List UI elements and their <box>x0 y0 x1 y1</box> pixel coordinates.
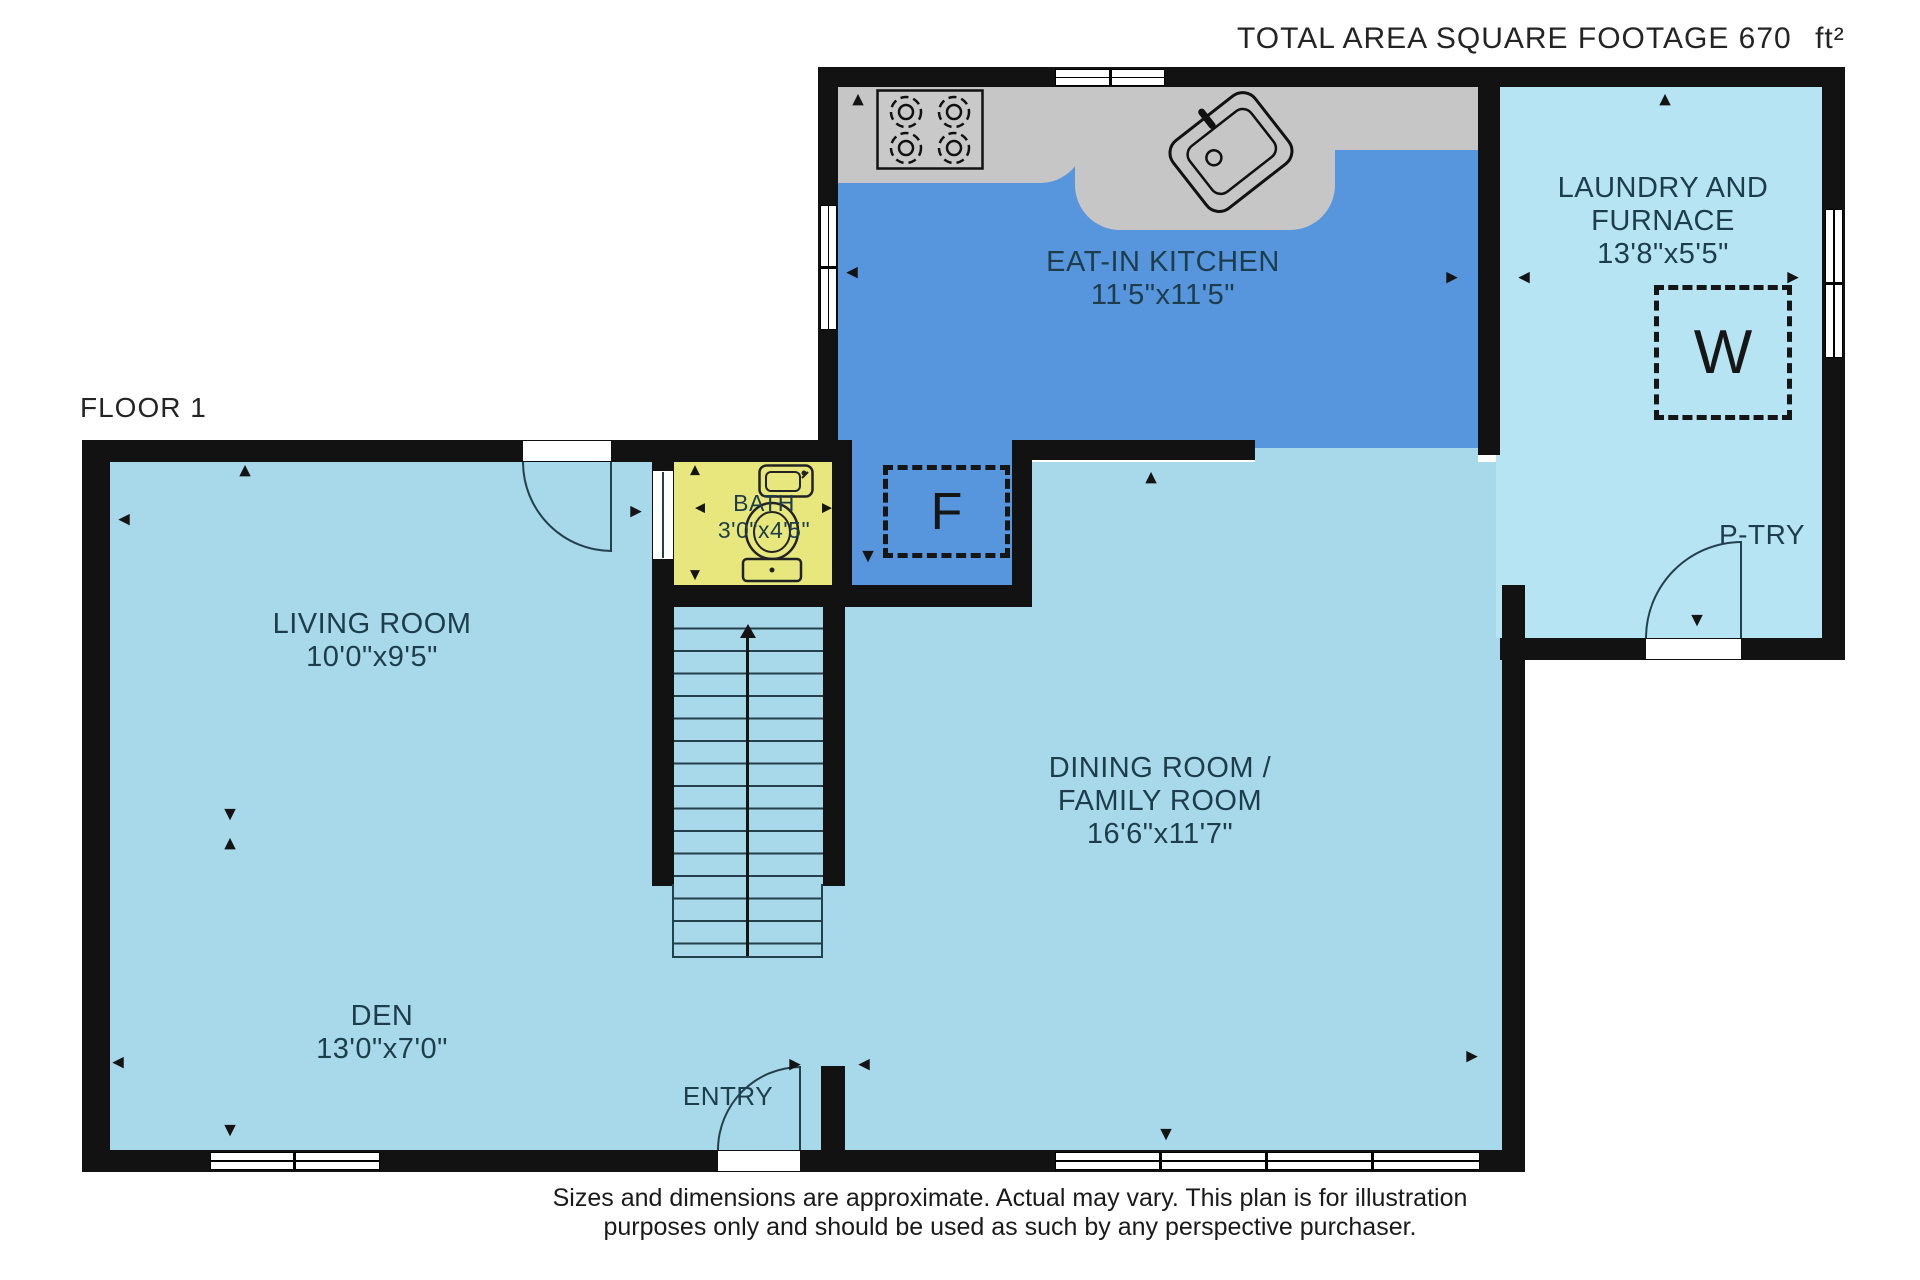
laundry-label: LAUNDRY AND FURNACE 13'8"x5'5" <box>1558 172 1769 271</box>
dining-name-2: FAMILY ROOM <box>1049 785 1271 818</box>
bath-door-leaf <box>662 472 664 558</box>
entry-door-sill <box>717 1150 801 1172</box>
arrow-left-icon: ◀ <box>118 512 130 527</box>
dining-bottom-window <box>1055 1152 1480 1170</box>
laundry-dims: 13'8"x5'5" <box>1558 238 1769 271</box>
dining-name-1: DINING ROOM / <box>1049 752 1271 785</box>
floor-plan: TOTAL AREA SQUARE FOOTAGE 670 ft² FLOOR … <box>0 0 1920 1280</box>
arrow-down-icon: ▼ <box>1691 613 1703 628</box>
stove-icon <box>876 89 984 170</box>
arrow-right-icon: ▶ <box>822 501 832 516</box>
arrow-up-icon: ▲ <box>690 463 700 478</box>
wall <box>1500 67 1845 87</box>
bath-label: BATH 3'0"x4'5" <box>718 490 810 544</box>
arrow-down-icon: ▼ <box>224 1123 236 1138</box>
wall <box>821 1066 845 1172</box>
disclaimer-line-2: purposes only and should be used as such… <box>410 1213 1610 1242</box>
disclaimer-line-1: Sizes and dimensions are approximate. Ac… <box>410 1184 1610 1213</box>
wall <box>1502 585 1525 1150</box>
washer-box: W <box>1654 285 1792 420</box>
bath-name: BATH <box>718 490 810 517</box>
arrow-up-icon: ▲ <box>224 836 236 851</box>
living-dims: 10'0"x9'5" <box>273 641 472 674</box>
total-area-unit: ft² <box>1815 22 1845 55</box>
wall <box>832 440 852 607</box>
arrow-right-icon: ▶ <box>1466 1049 1478 1064</box>
laundry-right-window <box>1825 209 1843 358</box>
kitchen-top-window <box>1055 69 1165 86</box>
dining-dims: 16'6"x11'7" <box>1049 818 1271 851</box>
kitchen-dims: 11'5"x11'5" <box>1046 279 1280 312</box>
arrow-up-icon: ▲ <box>1659 92 1671 107</box>
total-area-text: TOTAL AREA SQUARE FOOTAGE 670 <box>1237 22 1792 55</box>
disclaimer: Sizes and dimensions are approximate. Ac… <box>410 1184 1610 1242</box>
pantry-door-sill <box>1645 638 1742 660</box>
wall <box>1012 440 1255 460</box>
den-dims: 13'0"x7'0" <box>316 1033 448 1066</box>
arrow-up-icon: ▲ <box>239 463 251 478</box>
arrow-down-icon: ▼ <box>690 568 700 583</box>
laundry-name-1: LAUNDRY AND <box>1558 172 1769 205</box>
fridge-box: F <box>883 465 1010 558</box>
dining-label: DINING ROOM / FAMILY ROOM 16'6"x11'7" <box>1049 752 1271 851</box>
arrow-left-icon: ◀ <box>846 265 858 280</box>
wall <box>652 607 674 886</box>
bath-dims: 3'0"x4'5" <box>718 517 810 544</box>
den-name: DEN <box>316 1000 448 1033</box>
wall <box>82 440 110 1172</box>
wall <box>1012 440 1032 607</box>
arrow-down-icon: ▼ <box>862 549 874 564</box>
arrow-left-icon: ◀ <box>112 1055 124 1070</box>
arrow-down-icon: ▼ <box>1160 1127 1172 1142</box>
laundry-name-2: FURNACE <box>1558 205 1769 238</box>
kitchen-label: EAT-IN KITCHEN 11'5"x11'5" <box>1046 246 1280 312</box>
washer-letter: W <box>1694 317 1753 388</box>
wall <box>82 440 838 462</box>
den-bottom-window <box>210 1152 380 1170</box>
pantry-label: P-TRY <box>1719 518 1805 551</box>
den-label: DEN 13'0"x7'0" <box>316 1000 448 1066</box>
entry-door-leaf <box>799 1066 801 1150</box>
kitchen-left-window <box>820 205 837 330</box>
arrow-right-icon: ▶ <box>630 504 642 519</box>
arrow-up-icon: ▲ <box>1145 470 1157 485</box>
pantry-door-leaf <box>1740 541 1742 638</box>
arrow-right-icon: ▶ <box>1787 270 1799 285</box>
wall <box>823 607 845 886</box>
arrow-down-icon: ▼ <box>224 807 236 822</box>
living-name: LIVING ROOM <box>273 608 472 641</box>
arrow-up-icon: ▲ <box>852 92 864 107</box>
entry-label: ENTRY <box>683 1080 773 1113</box>
arrow-right-icon: ▶ <box>789 1057 801 1072</box>
arrow-left-icon: ◀ <box>695 501 705 516</box>
arrow-right-icon: ▶ <box>1446 270 1458 285</box>
fridge-letter: F <box>931 482 963 542</box>
living-room-door-sill <box>522 440 612 462</box>
living-label: LIVING ROOM 10'0"x9'5" <box>273 608 472 674</box>
living-room-door-leaf <box>610 462 612 552</box>
wall <box>1478 67 1500 455</box>
staircase-direction-line <box>746 636 749 956</box>
wall <box>652 585 1032 607</box>
wall <box>1822 67 1845 660</box>
page-title: TOTAL AREA SQUARE FOOTAGE 670 ft² <box>1237 22 1845 56</box>
arrow-left-icon: ◀ <box>1518 270 1530 285</box>
kitchen-name: EAT-IN KITCHEN <box>1046 246 1280 279</box>
arrow-left-icon: ◀ <box>858 1057 870 1072</box>
staircase-up-arrow-icon <box>740 624 756 638</box>
floor-label: FLOOR 1 <box>80 392 207 424</box>
